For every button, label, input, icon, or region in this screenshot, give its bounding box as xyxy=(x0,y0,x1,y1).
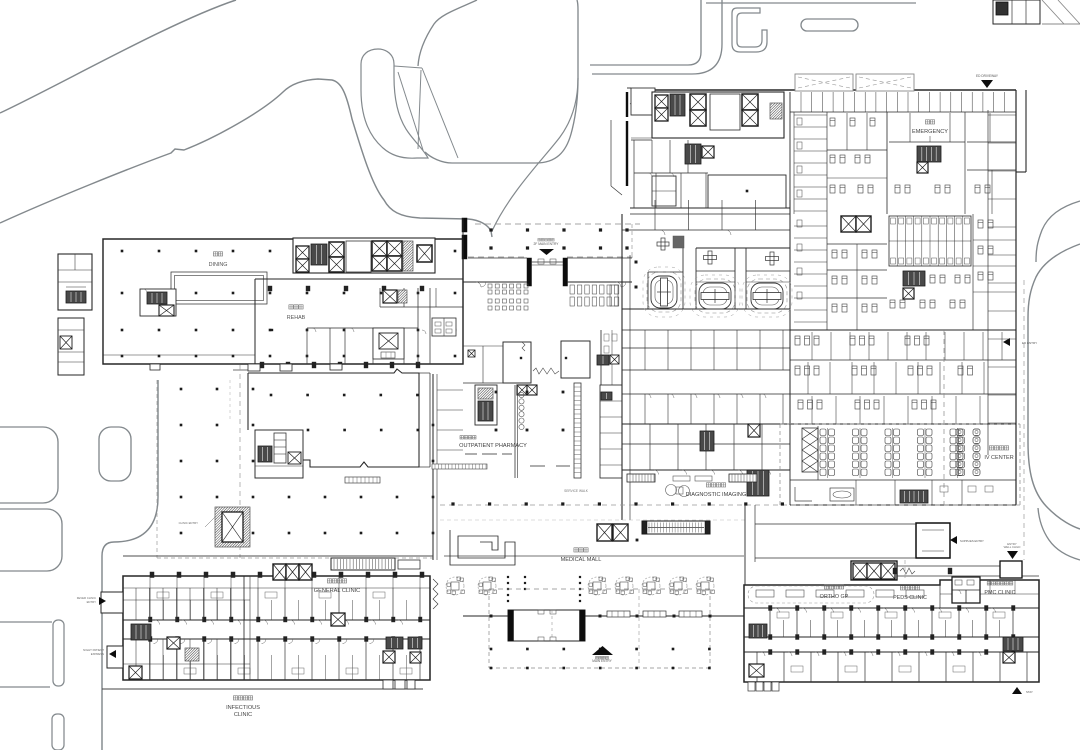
svg-text:OUTPATIENT PHARMACY: OUTPATIENT PHARMACY xyxy=(459,443,527,449)
svg-text:DIAGNOSTIC IMAGING: DIAGNOSTIC IMAGING xyxy=(686,492,747,498)
svg-text:SERVICE WALK: SERVICE WALK xyxy=(564,489,589,493)
svg-text:MAIN ENTRY: MAIN ENTRY xyxy=(592,659,612,663)
svg-text:REHAB: REHAB xyxy=(287,315,306,321)
svg-text:ENTRY: ENTRY xyxy=(87,600,97,604)
svg-text:GENERAL CLINIC: GENERAL CLINIC xyxy=(314,588,360,594)
svg-text:IV CENTER: IV CENTER xyxy=(984,455,1013,461)
svg-text:ENTRY: ENTRY xyxy=(1007,542,1017,546)
svg-text:PMC CLINIC: PMC CLINIC xyxy=(984,590,1015,596)
svg-text:DINING: DINING xyxy=(209,262,228,268)
svg-text:EXPRESS: EXPRESS xyxy=(91,652,104,656)
svg-text:MEDICAL MALL: MEDICAL MALL xyxy=(561,557,602,563)
svg-text:2F MAIN ENTRY: 2F MAIN ENTRY xyxy=(533,242,559,246)
svg-text:CLINIC ENTRY: CLINIC ENTRY xyxy=(179,521,199,525)
svg-text:PEDS CLINIC: PEDS CLINIC xyxy=(893,595,927,601)
svg-text:SUPPLIES ENTRY: SUPPLIES ENTRY xyxy=(960,539,984,543)
svg-text:ED DRIVEWAY: ED DRIVEWAY xyxy=(976,74,999,78)
svg-text:EMERGENCY: EMERGENCY xyxy=(912,129,948,135)
svg-text:STAY: STAY xyxy=(1026,690,1033,694)
svg-text:ORTHO GP: ORTHO GP xyxy=(820,594,849,600)
svg-text:CLINIC: CLINIC xyxy=(234,712,252,718)
svg-text:INFECTIOUS: INFECTIOUS xyxy=(226,705,260,711)
